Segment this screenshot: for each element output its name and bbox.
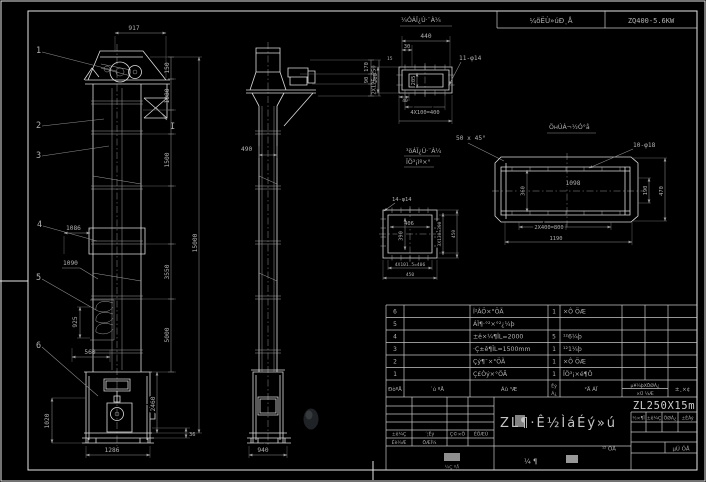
- dim-940: 940: [257, 447, 268, 454]
- callout-2: 2: [36, 121, 41, 131]
- trough-outline: [495, 157, 638, 222]
- bom-header-qty-top: Êý: [551, 382, 557, 390]
- sheet-total: ¹² ÕÅ: [602, 446, 616, 453]
- detail-flange-a: ¼ÓÁÏ¿Ú·¨À¼ 440 30 15 2X125=250 205 11-φ1…: [372, 15, 482, 124]
- callout-1: 1: [36, 46, 41, 56]
- dim-1098: 1098: [566, 180, 581, 187]
- bom-row-mat: ×Ô ÖÆ: [563, 357, 586, 366]
- bom-header-mat: ²Ä ÁÏ: [585, 386, 598, 393]
- side-outline: [246, 48, 316, 443]
- rev-design-label: Éè¼Æ: [392, 438, 407, 446]
- bom-row-qty: 5: [552, 334, 556, 341]
- model-designation: ZL250X15m: [633, 400, 695, 412]
- info-header-stage: ½×¶Î: [632, 415, 645, 422]
- dim-560: 560: [84, 349, 95, 356]
- bom-row-no: 4: [393, 334, 397, 341]
- detail-a-title: ¼ÓÁÏ¿Ú·¨À¼: [401, 15, 441, 24]
- bom-row-name: Çý¶¯×°ÖÃ: [473, 357, 506, 366]
- smudge-artifact: [304, 409, 319, 430]
- bom-header-weight-top: µ¥¼þXÖØÁ¿: [631, 382, 660, 389]
- drive-shaft: [129, 66, 142, 79]
- holes-11-label: 11-φ14: [459, 55, 482, 62]
- holes-10-label: 10-φ18: [633, 142, 656, 149]
- label-outlet-flange: ³öÁÏ¿Ú·¨À¼: [406, 146, 441, 155]
- bom-header-note: ±¸×¢: [675, 387, 690, 393]
- bom-row-name: ÁÏ¶·°²×°²¿¼þ: [473, 319, 515, 328]
- drive-shaft-hub: [133, 70, 137, 74]
- bom-row-mat: ¹²6¼þ: [563, 334, 582, 341]
- bom-header-weight-bottom: ×Ü ¼Æ: [636, 390, 654, 397]
- dim-15000: 15000: [192, 233, 199, 252]
- title-block: ±ê¼Ç ´¦Êý Ç©×Ö ÈÕÆÚ Éè¼Æ ÖÆÍ¼ ¼Ç ºÅ ZL¶·…: [386, 397, 697, 471]
- detail-c-ext: [383, 210, 459, 280]
- dim-1190: 1190: [550, 236, 563, 242]
- front-dimensions: 917 150 1080 1500 3550 5000 15000 2460 3…: [36, 25, 202, 458]
- detail-a-outline: [399, 67, 452, 93]
- approval-stamp: [444, 453, 460, 461]
- callout-5: 5: [36, 273, 41, 283]
- dim-450-bottom: 450: [406, 272, 415, 278]
- drive-model: ZQ400-5.6KW: [628, 17, 675, 25]
- dim-4x100: 4X100=400: [410, 110, 439, 116]
- cad-drawing-canvas: ¼õËÙ»úÐͺÅ ZQ400-5.6KW I 917 150 1080 150…: [0, 0, 706, 482]
- rev-header-sign: Ç©×Ö: [450, 431, 466, 438]
- bom-row-name: Ç£Òý×°ÖÃ: [473, 369, 508, 378]
- cad-drawing: ¼õËÙ»úÐͺÅ ZQ400-5.6KW I 917 150 1080 150…: [0, 0, 706, 482]
- mid-stamp: [566, 455, 578, 463]
- side-ext-lines: [249, 60, 381, 458]
- dim-15: 15: [387, 56, 393, 62]
- bom-row-no: 3: [393, 346, 397, 353]
- holes-10-leader: [589, 149, 633, 168]
- bom-row-qty: 1: [552, 371, 556, 378]
- front-ext-lines: [52, 36, 202, 458]
- sheet-number: µÚ ÕÅ: [672, 446, 689, 453]
- dim-2x125: 2X125=250: [372, 65, 378, 94]
- drive-label: ¼õËÙ»úÐͺÅ: [529, 16, 572, 25]
- callout-6: 6: [36, 341, 41, 351]
- dim-190: 190: [643, 186, 649, 196]
- bom-row-mat: ¹²1¼þ: [563, 346, 582, 353]
- bom-row-no: 6: [393, 309, 397, 316]
- bom-header-qty-bottom: Á¿: [551, 390, 557, 397]
- bom-row-name: Î²ÂÖ×°ÖÃ: [473, 307, 504, 316]
- dim-470: 470: [659, 186, 665, 196]
- bom-row-name: ·Ç±ê¶ÎL=1500mm: [473, 344, 530, 353]
- head-pulley: [110, 62, 130, 82]
- dim-1090: 1090: [63, 260, 78, 267]
- holes-11-leader: [449, 62, 461, 85]
- dim-2x400: 2X400=800: [534, 225, 563, 231]
- bucket-2: [96, 312, 113, 322]
- smudge-core: [306, 411, 313, 420]
- dim-490: 490: [241, 146, 252, 153]
- callout-leaders: [42, 52, 116, 396]
- mid-signature-chars: ¼ ¶: [524, 458, 537, 466]
- dim-205: 205: [411, 76, 417, 86]
- dim-5000: 5000: [164, 327, 171, 342]
- dim-3x130: 3X130=390: [437, 221, 443, 246]
- dim-2460: 2460: [150, 396, 157, 411]
- dim-36: 36: [189, 432, 196, 438]
- centering-ticks: [0, 281, 373, 480]
- dim-150: 150: [164, 62, 171, 73]
- chamfer-note-group: ³öÁÏ¿Ú·¨À¼ ÏÖ³¡ìº×° 50 x 45°: [404, 134, 504, 167]
- side-view: [246, 48, 316, 443]
- dim-1020: 1020: [44, 413, 51, 428]
- info-header-weight: ÖØÁ¿: [664, 415, 677, 422]
- dim-1500: 1500: [164, 152, 171, 167]
- bom-row-name: ±ê×¼¶ÎL=2000: [473, 332, 523, 341]
- info-header-scale: ±ÈÀý: [681, 414, 694, 422]
- dim-406: 406: [404, 221, 414, 227]
- detail-a-bolt-ticks: [397, 65, 455, 96]
- dim-440: 440: [420, 33, 431, 40]
- bucket-3: [96, 323, 113, 333]
- dim-40: 40: [402, 98, 408, 104]
- detail-flange-c: 14-φ14 406 390 3X130=390 450 4X101.5=406…: [381, 197, 460, 280]
- bom-header-name: Ãû ³Æ: [501, 386, 517, 393]
- bom-header-code: ´ú ºÅ: [430, 386, 444, 393]
- front-detail-lines: [90, 64, 143, 370]
- drawing-title: ZL¶·Ê½ÌáÉý»ú: [500, 415, 617, 431]
- dim-4x101: 4X101.5=406: [395, 262, 426, 268]
- bucket-1: [96, 301, 113, 311]
- rev-header-date: ÈÕÆÚ: [474, 430, 488, 438]
- label-site-install: ÏÖ³¡ìº×°: [406, 157, 431, 166]
- rev-draw-label: ÖÆÍ¼: [423, 439, 437, 446]
- bom-row-qty: 1: [552, 309, 556, 316]
- bom-row-mat: ÏÖ³¡×é¶Ô: [563, 369, 593, 378]
- dim-90: 90: [364, 77, 370, 84]
- chamfer-leader: [468, 143, 504, 161]
- dim-450-right: 450: [451, 230, 457, 239]
- chamfer-note: 50 x 45°: [456, 134, 486, 142]
- bom-row-mat: ×Ô ÖÆ: [563, 307, 586, 316]
- dim-1286: 1286: [105, 447, 120, 454]
- rev-header-mark: ±ê¼Ç: [392, 431, 406, 438]
- bom-row-qty: 1: [552, 346, 556, 353]
- detail-trough: ÖнÚÁ¬½Ó°å 10-φ18 1098 360 190 470 2X400=…: [495, 122, 667, 245]
- dim-170: 170: [364, 62, 370, 72]
- dim-3550: 3550: [164, 264, 171, 279]
- stamp-caption: ¼Ç ºÅ: [445, 464, 460, 471]
- dim-1086: 1086: [66, 225, 81, 232]
- dim-360: 360: [521, 186, 527, 196]
- header-strip: ¼õËÙ»úÐͺÅ ZQ400-5.6KW: [497, 11, 697, 28]
- callout-3: 3: [36, 151, 41, 161]
- trough-title: ÖнÚÁ¬½Ó°å: [549, 122, 590, 131]
- dim-30: 30: [404, 44, 411, 50]
- holes-14-label: 14-φ14: [392, 197, 411, 203]
- bom-row-qty: 1: [552, 359, 556, 366]
- dim-917: 917: [128, 25, 139, 32]
- callout-4: 4: [37, 220, 42, 230]
- bom-row-no: 1: [393, 371, 397, 378]
- dim-390: 390: [399, 231, 405, 241]
- dim-1080: 1080: [164, 88, 171, 103]
- info-header-mark: ±ê¼Ç: [647, 415, 661, 422]
- bom-row-no: 5: [393, 321, 397, 328]
- bom-header-no: ÐòºÅ: [388, 386, 402, 393]
- dim-925: 925: [72, 316, 79, 327]
- rev-header-count: ´¦Êý: [425, 430, 435, 438]
- bom-row-no: 2: [393, 359, 397, 366]
